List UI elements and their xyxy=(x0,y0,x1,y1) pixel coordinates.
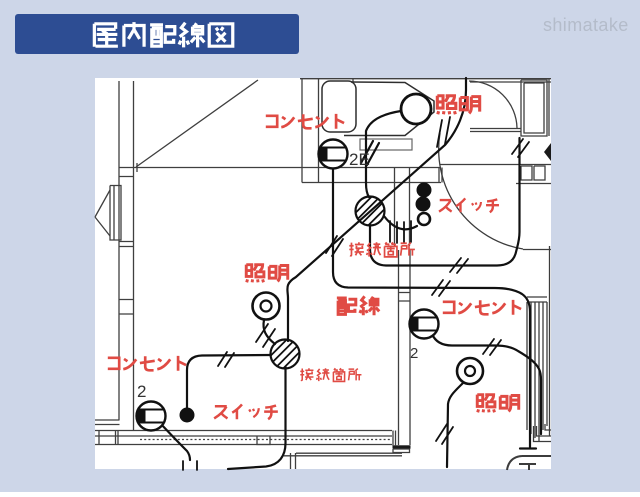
svg-text:2E: 2E xyxy=(349,150,370,169)
svg-text:2: 2 xyxy=(137,382,146,401)
svg-text:2: 2 xyxy=(410,345,418,362)
svg-text:shimatake: shimatake xyxy=(543,15,629,35)
